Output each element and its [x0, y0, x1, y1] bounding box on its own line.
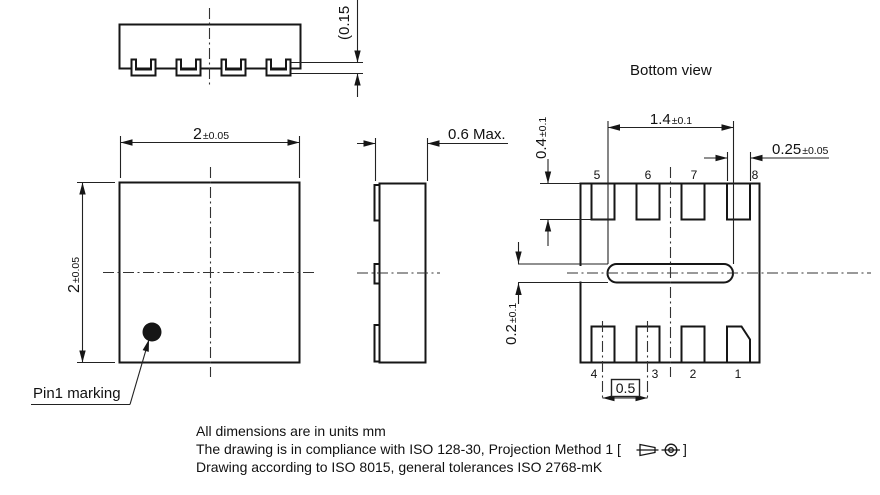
pin-number-5: 5 [594, 168, 601, 182]
drawing-notes: All dimensions are in units mm The drawi… [196, 423, 687, 475]
projection-method-symbol [637, 444, 681, 456]
epad-tab-edge-gap [578, 266, 583, 282]
pad-length-dim-label: 0.4±0.1 [533, 117, 550, 159]
height-dim-label: 2±0.05 [66, 257, 83, 293]
pin1-marking-label: Pin1 marking [33, 385, 121, 402]
thickness-dim-label: 0.6 Max. [448, 126, 506, 143]
package-dimension-drawing: (0.15 2±0.05 2±0.05 [0, 0, 880, 495]
drawing-canvas: (0.15 2±0.05 2±0.05 [0, 0, 880, 495]
pad-2 [682, 327, 705, 363]
pin-number-3: 3 [652, 367, 659, 381]
pitch-dim-label: 0.5 [616, 380, 636, 396]
bottom-view: Bottom view 1.4±0.1 [503, 62, 871, 401]
front-profile-view: (0.15 [120, 0, 364, 97]
pin-number-6: 6 [645, 168, 652, 182]
epad-tab-dim-label: 0.2±0.1 [503, 303, 520, 345]
pin-number-8: 8 [752, 168, 759, 182]
pad-width-dimension: 0.25±0.05 [704, 141, 829, 181]
pin-number-1: 1 [735, 367, 742, 381]
pad-8 [727, 184, 750, 220]
width-dim-label: 2±0.05 [193, 126, 229, 143]
pin-number-7: 7 [691, 168, 698, 182]
note-projection-close-bracket: ] [683, 441, 687, 457]
pad-6 [637, 184, 660, 220]
note-tolerances: Drawing according to ISO 8015, general t… [196, 459, 603, 475]
pad-5 [592, 184, 615, 220]
top-view: 2±0.05 2±0.05 Pin1 marking [31, 126, 317, 405]
pin-number-2: 2 [690, 367, 697, 381]
pin1-marking-dot [143, 323, 162, 342]
note-units: All dimensions are in units mm [196, 423, 386, 439]
pin-number-4: 4 [591, 367, 598, 381]
note-projection: The drawing is in compliance with ISO 12… [196, 441, 621, 457]
pad-7 [682, 184, 705, 220]
epad-tab-dimension: 0.2±0.1 [503, 242, 522, 345]
standoff-dim-label: (0.15 [336, 6, 353, 40]
pitch-dimension: 0.5 [603, 380, 648, 402]
epad-length-dim-label: 1.4±0.1 [650, 111, 692, 128]
standoff-dimension: (0.15 [291, 0, 363, 97]
side-view: 0.6 Max. [357, 126, 508, 363]
pad-width-dim-label: 0.25±0.05 [772, 141, 829, 158]
bottom-view-title: Bottom view [630, 62, 712, 79]
thickness-dimension: 0.6 Max. [357, 126, 508, 181]
